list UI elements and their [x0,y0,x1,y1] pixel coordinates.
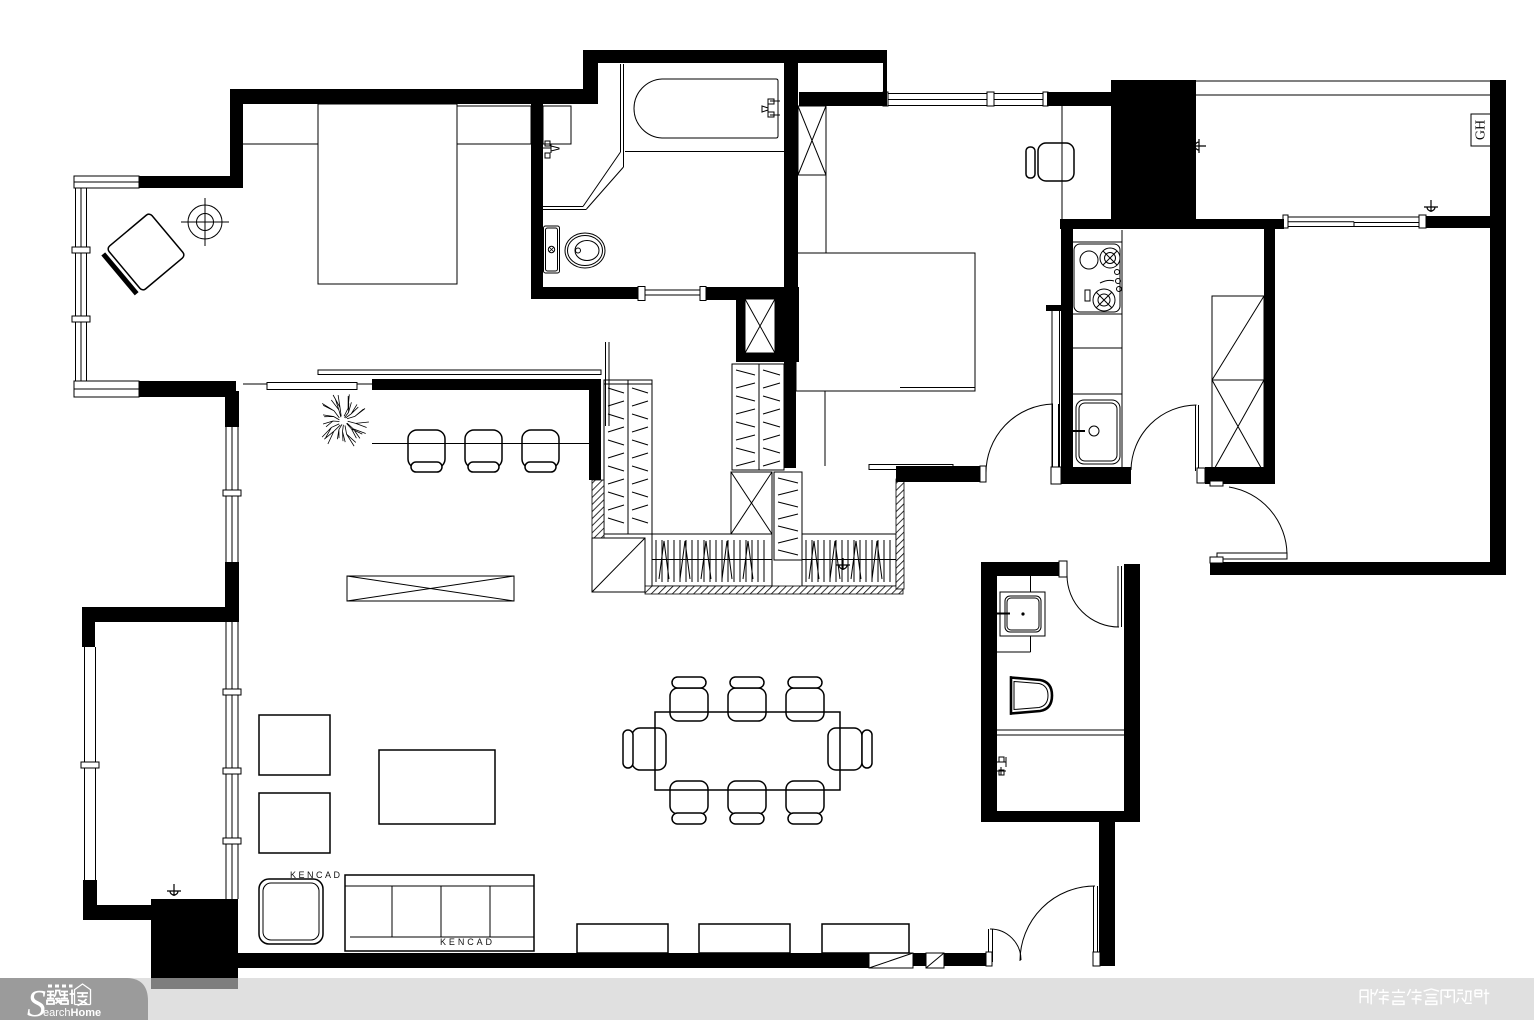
svg-text:earchHome: earchHome [43,1007,101,1019]
svg-text:KENCAD: KENCAD [290,870,341,880]
svg-text:GH: GH [1474,120,1489,140]
